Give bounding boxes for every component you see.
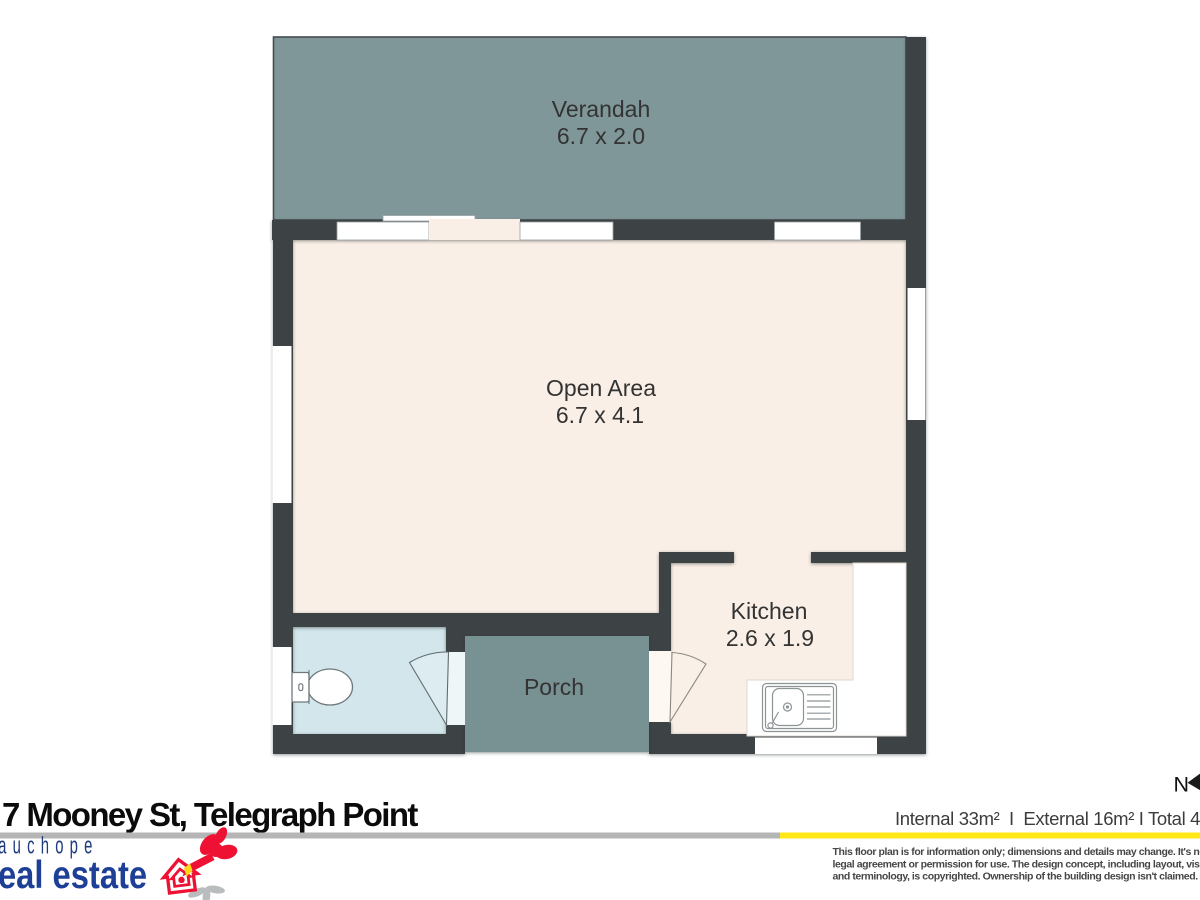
svg-text:N: N	[1174, 773, 1190, 797]
svg-text:legal agreement or permission: legal agreement or permission for use. T…	[833, 858, 1200, 870]
svg-text:6.7 x 4.1: 6.7 x 4.1	[556, 402, 644, 428]
svg-text:Kitchen: Kitchen	[731, 598, 808, 624]
svg-text:Open Area: Open Area	[546, 375, 656, 401]
svg-text:Verandah: Verandah	[552, 96, 650, 122]
svg-text:2.6 x 1.9: 2.6 x 1.9	[726, 625, 814, 651]
svg-text:This floor plan is for informa: This floor plan is for information only;…	[833, 846, 1200, 858]
svg-text:Internal 33m² I External 16m: Internal 33m² I External 16m² I Total 49…	[895, 808, 1200, 829]
svg-text:6.7 x 2.0: 6.7 x 2.0	[557, 123, 645, 149]
svg-text:7 Mooney St, Telegraph Point: 7 Mooney St, Telegraph Point	[2, 796, 418, 833]
svg-text:eal estate: eal estate	[0, 854, 147, 897]
svg-text:and terminology, is copyrighte: and terminology, is copyrighted. Ownersh…	[833, 871, 1199, 883]
svg-text:Porch: Porch	[524, 674, 584, 700]
